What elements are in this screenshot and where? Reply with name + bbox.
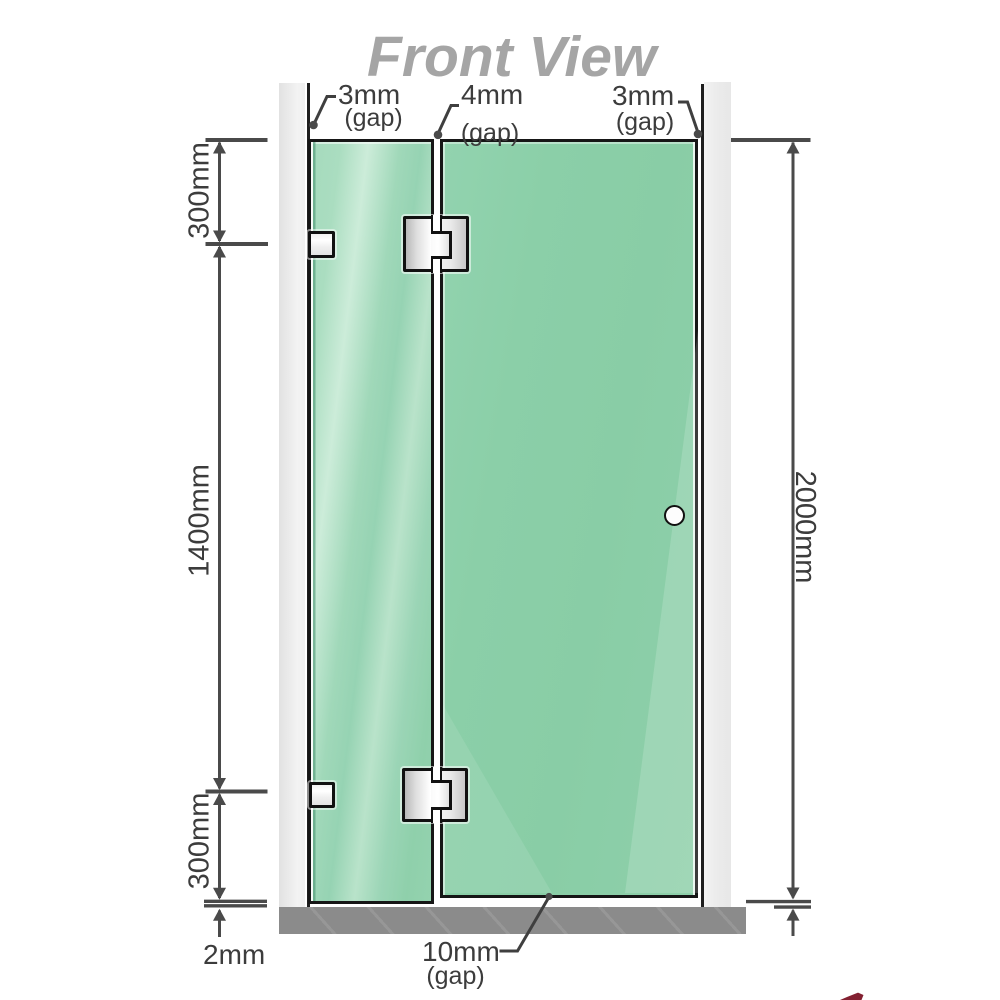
- svg-text:300mm: 300mm: [184, 142, 216, 239]
- svg-text:2000mm: 2000mm: [789, 471, 821, 584]
- svg-text:1400mm: 1400mm: [184, 464, 216, 577]
- svg-text:2mm: 2mm: [203, 939, 265, 970]
- svg-text:300mm: 300mm: [184, 793, 216, 890]
- svg-text:(gap): (gap): [616, 108, 674, 136]
- svg-text:3mm: 3mm: [612, 80, 674, 111]
- svg-text:(gap): (gap): [461, 119, 519, 147]
- svg-text:(gap): (gap): [426, 962, 484, 990]
- svg-text:4mm: 4mm: [461, 79, 523, 110]
- svg-text:(gap): (gap): [344, 104, 402, 132]
